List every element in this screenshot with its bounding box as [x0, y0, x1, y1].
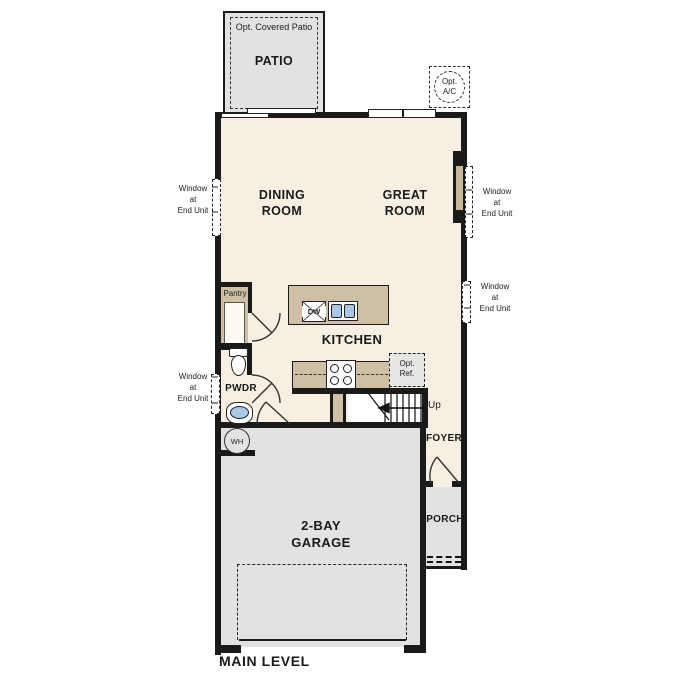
sink-basin — [331, 304, 342, 318]
opt-fridge-label: Opt. Ref. — [389, 359, 425, 379]
patio-label: PATIO — [240, 53, 308, 69]
dishwasher-label: DW — [302, 306, 326, 317]
wall — [404, 645, 426, 653]
up-label: Up — [428, 400, 452, 411]
water-heater-label: WH — [224, 436, 250, 447]
counter-dash-line — [357, 374, 388, 375]
floor-plan: Opt. Covered Patio PATIO Opt. A/C Window… — [0, 0, 687, 687]
wall — [420, 422, 426, 652]
range — [326, 360, 356, 389]
stairs — [348, 394, 422, 422]
pantry-label: Pantry — [221, 288, 249, 299]
window-mullion — [402, 110, 404, 117]
window-label: Window at End Unit — [172, 183, 214, 216]
foyer-label: FOYER — [414, 433, 474, 444]
window-label: Window at End Unit — [475, 186, 519, 219]
kitchen-label: KITCHEN — [292, 332, 412, 348]
burner-icon — [343, 364, 352, 373]
sliding-door — [221, 113, 269, 118]
porch-area — [424, 487, 462, 567]
burner-icon — [330, 376, 339, 385]
media-niche-inset — [456, 166, 463, 210]
porch-label: PORCH — [414, 514, 476, 525]
garage-label: 2-BAY GARAGE — [261, 517, 381, 551]
porch-step — [427, 556, 461, 558]
garage-door-dashed — [237, 564, 407, 640]
opt-covered-patio-label: Opt. Covered Patio — [232, 22, 316, 33]
window — [368, 109, 436, 118]
opt-ac-label: Opt. A/C — [432, 77, 467, 97]
sink-basin — [344, 304, 355, 318]
counter-dash-line — [295, 374, 326, 375]
burner-icon — [343, 376, 352, 385]
powder-room-label: PWDR — [218, 383, 264, 394]
main-level-title: MAIN LEVEL — [219, 653, 359, 669]
end-unit-window-marker — [465, 166, 473, 238]
dining-room-label: DINING ROOM — [238, 187, 326, 219]
porch-step — [427, 561, 461, 563]
window-label: Window at End Unit — [172, 371, 214, 404]
great-room-label: GREAT ROOM — [361, 187, 449, 219]
end-unit-window-marker — [462, 281, 471, 323]
wall — [215, 645, 241, 653]
stair-divider — [330, 394, 346, 422]
wall — [420, 481, 433, 487]
wall — [423, 566, 467, 569]
pantry-shelf — [224, 302, 245, 343]
burner-icon — [330, 364, 339, 373]
wall — [452, 481, 467, 487]
window-label: Window at End Unit — [473, 281, 517, 314]
powder-sink-basin — [230, 406, 249, 419]
